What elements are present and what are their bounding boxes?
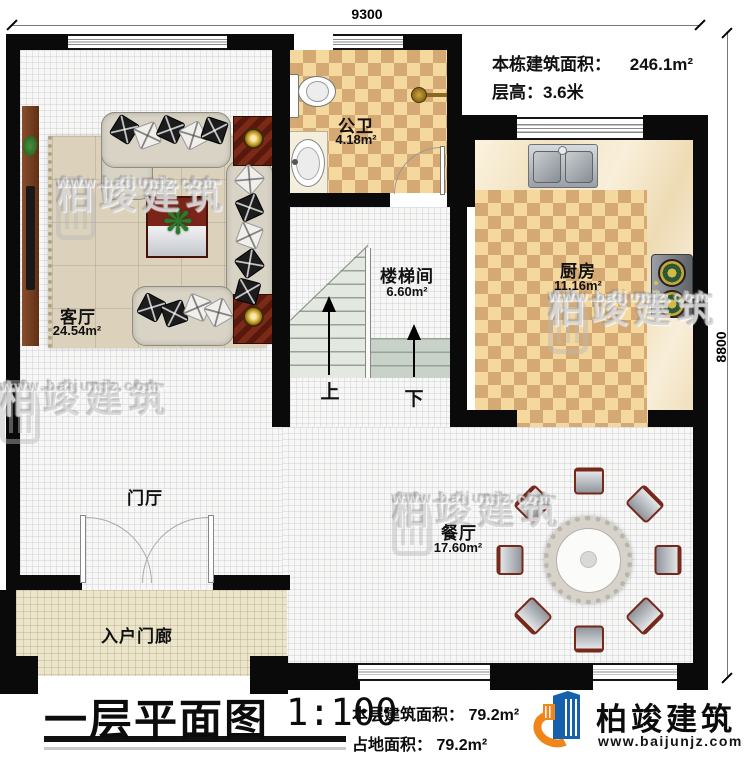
stove-knob [654,281,658,285]
plant-centerpiece: ❋ [158,202,198,242]
wall [267,663,360,690]
stair-flight-down [368,338,450,378]
window [68,34,227,50]
shower-valve [411,87,427,103]
wall [6,34,20,590]
wall [648,410,708,427]
wall [272,34,290,427]
bath-faucet [292,159,298,165]
floor-area-line: 本层建筑面积： 79.2m² [352,701,519,725]
top-dimension-label: 9300 [337,6,397,22]
down-arrow-stem [413,338,415,377]
building-area-key: 本栋建筑面积： [492,55,611,74]
land-area-line: 占地面积： 79.2m² [352,731,487,755]
wall [462,115,517,140]
door-leaf-right [208,515,214,583]
window [358,663,490,681]
toilet-bowl-inner [306,81,329,102]
stove-burner [658,290,686,318]
building-area-value: 246.1m² [630,55,693,74]
land-area-value: 79.2m² [436,737,487,754]
window [517,117,643,140]
brand-logo-icon [536,691,590,751]
floor-area-key: 本层建筑面积： [352,707,464,724]
wall [450,207,467,427]
wall [693,128,708,690]
door-leaf-left [80,515,86,583]
window [333,34,403,50]
plan-title: 一层平面图 [44,686,269,748]
wall [0,590,16,660]
right-dimension-label: 8800 [713,317,729,377]
logo-tower [553,691,580,739]
bathroom-area: 4.18m² [326,132,386,147]
kitchen-area: 11.16m² [543,278,613,293]
bath-door-leaf [440,146,445,195]
table-lamp [243,128,264,149]
porch-label: 入户门廊 [87,622,187,647]
stove-burner [658,259,686,287]
bath-basin-inner [296,147,320,180]
wall [272,193,390,207]
stairs-up-label: 上 [313,377,347,404]
wall [490,663,593,690]
window [593,663,677,681]
brand-url: www.baijunjz.com [598,733,743,749]
dining-chair [574,468,604,495]
wall [677,663,708,690]
sink-faucet [558,146,567,155]
kitchen-floor [475,190,647,410]
wall [450,410,517,427]
dining-chair [655,545,682,575]
table-lamp [243,306,264,327]
sink-basin-right [565,151,593,183]
tv [26,186,35,290]
shower-arm [426,93,448,97]
dining-table-center [580,551,597,568]
foyer-label: 门厅 [114,484,176,509]
sink-basin-left [533,151,561,183]
floor-height-label: 层高：3.6米 [492,78,584,103]
porch-pillar [0,656,38,694]
wall [6,575,82,590]
top-dimension-line [12,25,700,26]
dining-room-area: 17.60m² [423,540,493,555]
building-area-label: 本栋建筑面积： 246.1m² [492,50,693,75]
logo-block [543,704,555,720]
stairs-down-label: 下 [397,384,431,411]
up-arrow-stem [328,310,330,375]
living-room-area: 24.54m² [42,323,112,338]
stairwell-area: 6.60m² [366,284,448,299]
kitchen-door-threshold [517,410,648,427]
floor-plan-canvas: 9300 8800 本栋建筑面积： 246.1m² 层高：3.6米 [0,0,750,761]
floor-area-value: 79.2m² [468,707,519,724]
land-area-key: 占地面积： [352,737,432,754]
stove-knob [654,289,658,293]
dining-chair [497,545,524,575]
dining-chair [574,626,604,653]
wall [213,575,290,590]
